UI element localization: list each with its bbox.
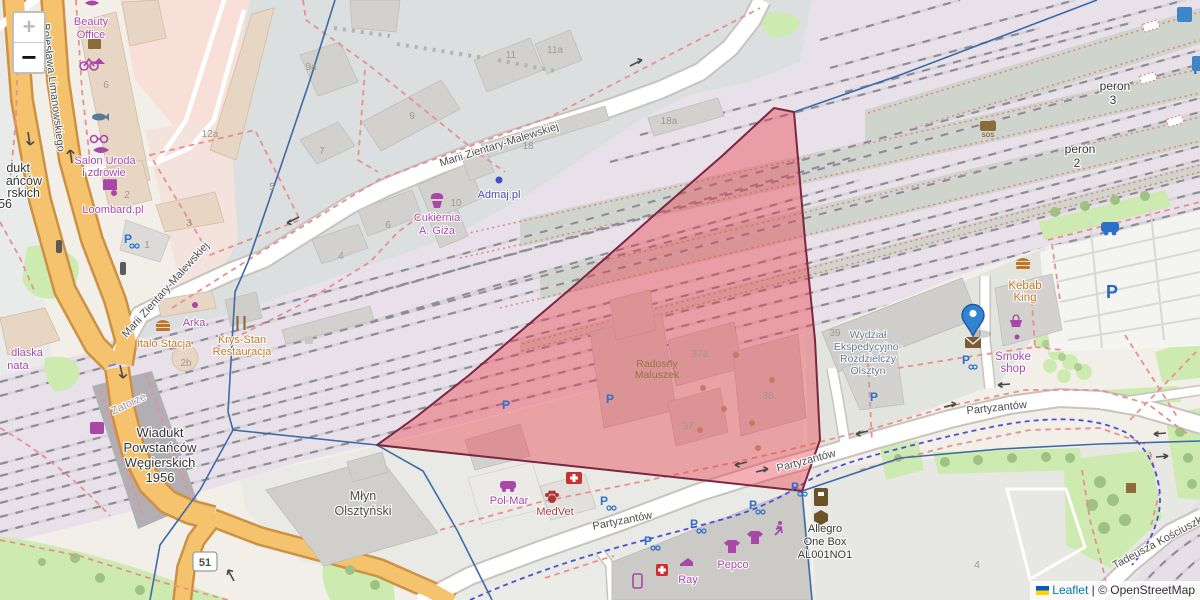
svg-text:4: 4 — [338, 251, 344, 262]
svg-text:One Box: One Box — [804, 536, 847, 548]
svg-text:peron: peron — [1100, 79, 1131, 93]
svg-text:Arka: Arka — [183, 317, 207, 329]
svg-text:Krys-Stan: Krys-Stan — [218, 334, 266, 346]
svg-text:37a: 37a — [692, 349, 709, 360]
svg-text:P: P — [690, 517, 698, 531]
svg-text:Allegro: Allegro — [808, 523, 842, 535]
svg-text:A. Giża: A. Giża — [419, 225, 456, 237]
svg-text:9a: 9a — [305, 62, 317, 73]
svg-text:Loombard.pl: Loombard.pl — [82, 204, 143, 216]
svg-text:MedVet: MedVet — [536, 506, 573, 518]
svg-text:P: P — [791, 480, 799, 494]
svg-text:11a: 11a — [547, 45, 563, 56]
svg-text:Olsztyn: Olsztyn — [850, 365, 885, 377]
svg-text:4: 4 — [974, 560, 980, 571]
svg-text:1956: 1956 — [146, 470, 175, 485]
svg-text:Salon Uroda: Salon Uroda — [74, 155, 136, 167]
svg-text:5: 5 — [269, 182, 275, 193]
svg-text:dlaska: dlaska — [11, 347, 44, 359]
svg-text:38: 38 — [762, 391, 774, 402]
svg-text:Rozdzielczy: Rozdzielczy — [840, 353, 897, 365]
svg-text:Smoke: Smoke — [995, 351, 1031, 363]
svg-text:Olsztyński: Olsztyński — [335, 504, 392, 518]
svg-text:Maluszek: Maluszek — [635, 369, 680, 381]
svg-text:2: 2 — [124, 190, 130, 201]
svg-text:3: 3 — [186, 218, 192, 229]
svg-text:Wydział: Wydział — [850, 329, 887, 341]
svg-text:P: P — [606, 392, 614, 406]
svg-text:i zdrowie: i zdrowie — [82, 167, 125, 179]
svg-text:dukt: dukt — [6, 161, 30, 175]
svg-text:1: 1 — [144, 240, 150, 251]
svg-text:18a: 18a — [661, 116, 678, 127]
svg-text:Beauty: Beauty — [74, 16, 109, 28]
svg-text:P: P — [962, 353, 970, 367]
svg-text:Powstańców: Powstańców — [124, 440, 198, 455]
svg-text:39: 39 — [829, 328, 841, 339]
svg-text:Restauracja: Restauracja — [213, 346, 273, 358]
svg-text:King: King — [1013, 292, 1036, 304]
svg-text:Kebab: Kebab — [1008, 280, 1041, 292]
svg-text:Pepco: Pepco — [717, 559, 748, 571]
svg-text:56: 56 — [0, 197, 12, 211]
svg-text:9: 9 — [409, 111, 415, 122]
svg-text:shop: shop — [1001, 363, 1026, 375]
svg-text:P: P — [1106, 282, 1118, 302]
svg-text:51: 51 — [199, 557, 211, 569]
svg-text:6: 6 — [103, 80, 109, 91]
svg-text:Cukiernia: Cukiernia — [414, 212, 461, 224]
svg-text:6: 6 — [385, 220, 391, 231]
svg-text:Italo Stacja: Italo Stacja — [137, 338, 192, 350]
svg-text:Młyn: Młyn — [350, 489, 376, 503]
svg-text:Ekspedycyjno-: Ekspedycyjno- — [834, 341, 903, 353]
svg-text:11: 11 — [506, 50, 517, 61]
svg-text:Węgierskich: Węgierskich — [125, 455, 196, 470]
svg-text:Ray: Ray — [678, 574, 698, 586]
svg-text:Admaj.pl: Admaj.pl — [478, 189, 521, 201]
svg-text:nata: nata — [7, 360, 29, 372]
svg-text:P: P — [502, 398, 510, 412]
svg-text:Pol-Mar: Pol-Mar — [490, 495, 529, 507]
svg-text:P: P — [870, 390, 878, 404]
svg-text:P: P — [644, 534, 652, 548]
svg-text:SOS: SOS — [982, 133, 995, 139]
svg-text:18: 18 — [522, 141, 534, 152]
svg-text:peron: peron — [1065, 142, 1096, 156]
svg-text:10: 10 — [450, 198, 462, 209]
svg-text:7: 7 — [319, 146, 325, 157]
svg-text:rskich: rskich — [7, 186, 40, 200]
svg-text:Wiadukt: Wiadukt — [137, 425, 184, 440]
svg-text:12a: 12a — [202, 129, 219, 140]
svg-text:P: P — [749, 498, 757, 512]
svg-text:37: 37 — [682, 421, 694, 432]
svg-text:AL001NO1: AL001NO1 — [798, 549, 852, 561]
svg-text:P: P — [600, 494, 608, 508]
svg-text:3: 3 — [1110, 93, 1117, 107]
svg-text:2: 2 — [1074, 156, 1081, 170]
svg-text:2b: 2b — [180, 358, 192, 369]
